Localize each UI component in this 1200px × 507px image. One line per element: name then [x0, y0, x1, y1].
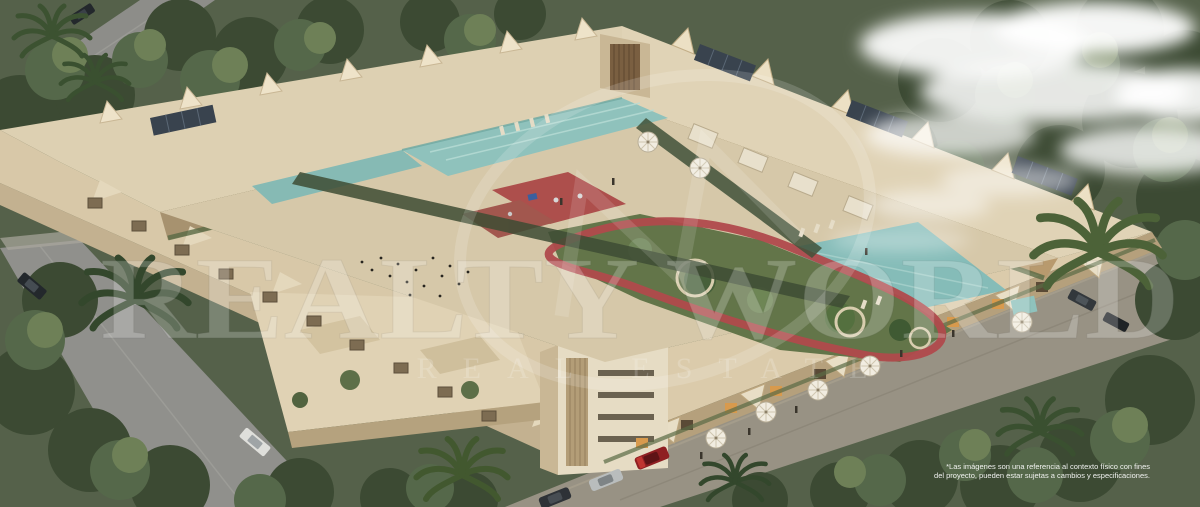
watermark-title: REALTY WORLD — [100, 233, 1180, 364]
aerial-render-image: REALTY WORLD REAL ESTATE *Las imágenes s… — [0, 0, 1200, 507]
disclaimer-text: *Las imágenes son una referencia al cont… — [934, 462, 1150, 480]
watermark-subtitle: REAL ESTATE — [417, 352, 894, 385]
disclaimer-line-2: del proyecto, pueden estar sujetas a cam… — [934, 471, 1150, 480]
disclaimer-line-1: *Las imágenes son una referencia al cont… — [946, 462, 1150, 471]
render-canvas: REALTY WORLD REAL ESTATE *Las imágenes s… — [0, 0, 1200, 507]
